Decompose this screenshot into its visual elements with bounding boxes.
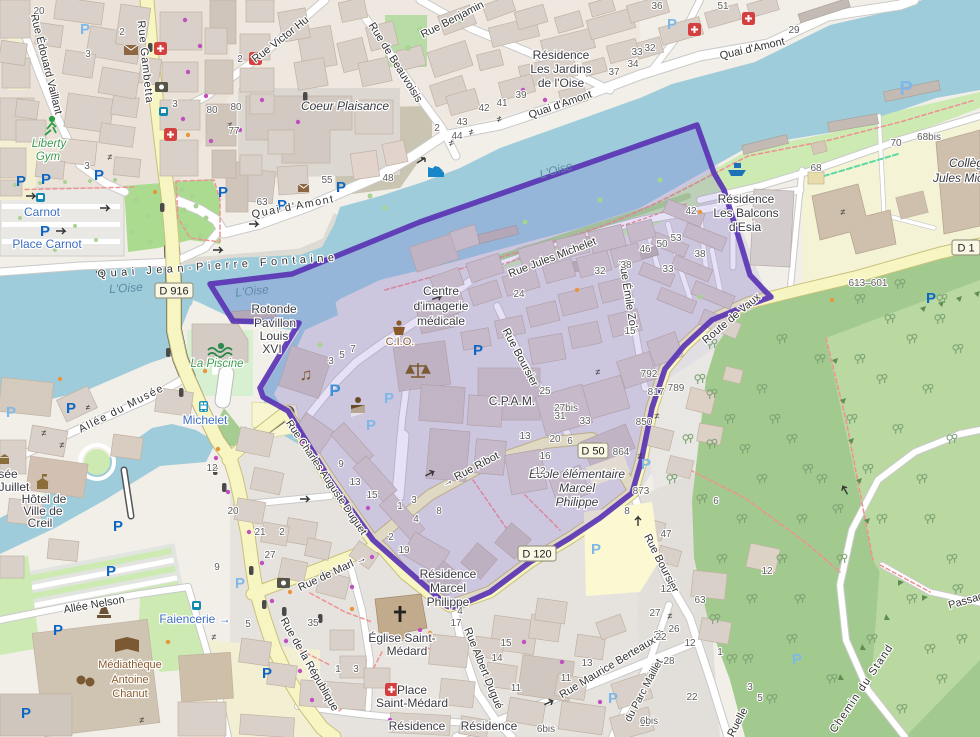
svg-text:1: 1: [397, 501, 403, 512]
svg-text:P: P: [41, 171, 51, 188]
svg-text:Marcel: Marcel: [559, 481, 595, 495]
svg-text:53: 53: [670, 233, 682, 244]
svg-text:≠: ≠: [108, 152, 113, 162]
svg-text:15: 15: [624, 326, 636, 337]
svg-text:613–601: 613–601: [849, 278, 888, 289]
svg-text:13: 13: [581, 658, 593, 669]
svg-text:21: 21: [254, 527, 266, 538]
svg-text:P: P: [113, 518, 123, 535]
svg-text:41: 41: [496, 98, 508, 109]
svg-text:D 1: D 1: [957, 243, 974, 255]
svg-text:11: 11: [511, 683, 522, 694]
svg-text:Marcel: Marcel: [430, 581, 466, 595]
svg-text:P: P: [366, 417, 376, 434]
svg-text:11: 11: [561, 673, 572, 684]
svg-text:Résidence: Résidence: [420, 567, 477, 581]
svg-text:43: 43: [456, 117, 468, 128]
svg-text:46: 46: [639, 244, 651, 255]
svg-text:33: 33: [631, 47, 643, 58]
svg-text:8: 8: [436, 506, 442, 517]
svg-text:70: 70: [890, 138, 902, 149]
svg-text:≠: ≠: [668, 611, 673, 621]
svg-text:12: 12: [534, 466, 546, 477]
svg-text:37: 37: [608, 67, 620, 78]
svg-text:Carnot: Carnot: [24, 205, 61, 219]
svg-text:27: 27: [649, 608, 661, 619]
svg-text:≠: ≠: [841, 207, 846, 217]
svg-text:Saint-Médard: Saint-Médard: [376, 696, 448, 710]
svg-text:29: 29: [788, 25, 800, 36]
svg-text:20: 20: [549, 434, 561, 445]
svg-text:15: 15: [500, 638, 512, 649]
svg-text:35: 35: [307, 618, 319, 629]
svg-text:2: 2: [279, 527, 285, 538]
svg-text:≠: ≠: [86, 403, 91, 412]
svg-text:P: P: [262, 665, 272, 682]
svg-text:≠: ≠: [638, 451, 643, 461]
svg-text:6: 6: [567, 436, 573, 447]
svg-text:33: 33: [662, 264, 674, 275]
svg-text:P: P: [608, 690, 618, 707]
svg-text:Place Carnot: Place Carnot: [12, 237, 82, 251]
svg-text:789: 789: [668, 383, 685, 394]
svg-text:3: 3: [84, 161, 90, 172]
svg-text:19: 19: [398, 545, 410, 556]
svg-text:sée: sée: [0, 467, 18, 481]
svg-text:20: 20: [227, 506, 239, 517]
svg-text:≠: ≠: [60, 440, 65, 450]
svg-text:P: P: [80, 21, 90, 38]
svg-text:50: 50: [656, 239, 668, 250]
svg-text:6bis: 6bis: [537, 724, 555, 735]
svg-text:26: 26: [668, 624, 680, 635]
svg-text:Résidence: Résidence: [533, 48, 590, 62]
svg-text:XVI: XVI: [262, 342, 281, 356]
svg-text:63: 63: [256, 197, 268, 208]
svg-text:2: 2: [434, 123, 440, 134]
svg-text:77: 77: [228, 126, 240, 137]
svg-text:28: 28: [663, 656, 675, 667]
svg-text:27: 27: [264, 550, 276, 561]
svg-text:P: P: [218, 184, 228, 201]
svg-text:25: 25: [539, 386, 551, 397]
svg-text:39: 39: [515, 90, 527, 101]
svg-text:P: P: [473, 342, 483, 359]
svg-text:4: 4: [457, 606, 463, 617]
svg-text:8: 8: [624, 506, 630, 517]
svg-text:≠: ≠: [42, 428, 47, 438]
svg-text:15: 15: [366, 490, 378, 501]
svg-text:Chanut: Chanut: [112, 688, 147, 700]
svg-text:4: 4: [413, 514, 419, 525]
svg-text:5: 5: [245, 619, 251, 630]
svg-text:≠: ≠: [596, 367, 601, 377]
svg-text:36: 36: [651, 1, 663, 12]
svg-text:P: P: [336, 179, 346, 196]
svg-text:5: 5: [339, 350, 345, 361]
svg-text:Juillet: Juillet: [0, 480, 30, 494]
svg-text:P: P: [53, 622, 63, 639]
svg-text:P: P: [926, 290, 936, 307]
svg-text:Antoine: Antoine: [111, 674, 148, 686]
svg-text:9: 9: [214, 562, 220, 573]
svg-text:Résidence: Résidence: [461, 719, 518, 733]
svg-text:13: 13: [349, 477, 361, 488]
svg-text:68: 68: [810, 163, 822, 174]
svg-text:20: 20: [33, 6, 45, 17]
svg-text:32: 32: [644, 43, 656, 54]
svg-text:873: 873: [633, 486, 650, 497]
svg-text:817: 817: [648, 387, 665, 398]
svg-text:P: P: [792, 651, 802, 668]
svg-text:48: 48: [382, 173, 394, 184]
svg-text:Les Balcons: Les Balcons: [713, 206, 778, 220]
svg-text:Creil: Creil: [28, 516, 53, 530]
svg-text:2: 2: [119, 27, 125, 38]
svg-text:P: P: [641, 456, 651, 473]
svg-text:3: 3: [85, 49, 91, 60]
svg-text:22: 22: [655, 632, 667, 643]
svg-text:P: P: [16, 173, 26, 190]
svg-text:Médiathèque: Médiathèque: [98, 659, 162, 671]
svg-text:C.I.O.: C.I.O.: [386, 336, 415, 348]
svg-text:Les Jardins: Les Jardins: [530, 62, 591, 76]
svg-text:22: 22: [686, 692, 698, 703]
svg-text:3: 3: [747, 682, 753, 693]
svg-text:L'Oise: L'Oise: [109, 280, 144, 296]
svg-text:d'imagerie: d'imagerie: [414, 299, 469, 313]
svg-text:Jules Mic: Jules Mic: [932, 171, 980, 185]
svg-text:38: 38: [694, 249, 706, 260]
svg-text:51: 51: [717, 1, 729, 12]
svg-text:80: 80: [206, 105, 218, 116]
svg-text:≠: ≠: [655, 411, 660, 421]
svg-text:12: 12: [660, 584, 672, 595]
svg-text:31: 31: [554, 411, 566, 422]
svg-text:D 916: D 916: [159, 286, 188, 298]
svg-text:63: 63: [694, 595, 706, 606]
svg-text:3: 3: [172, 99, 178, 110]
svg-text:de l'Oise: de l'Oise: [538, 76, 585, 90]
svg-text:≠: ≠: [212, 632, 217, 642]
svg-text:6bis: 6bis: [640, 716, 658, 727]
svg-text:♫: ♫: [300, 365, 313, 384]
svg-text:C.P.A.M.: C.P.A.M.: [489, 394, 535, 408]
svg-text:Liberty: Liberty: [32, 138, 68, 150]
svg-text:Centre: Centre: [423, 284, 459, 298]
svg-text:2: 2: [237, 54, 243, 65]
svg-text:P: P: [106, 563, 116, 580]
svg-text:P: P: [384, 390, 394, 407]
svg-text:P: P: [591, 541, 601, 558]
svg-text:Église Saint-: Église Saint-: [368, 630, 435, 645]
svg-text:14: 14: [491, 653, 503, 664]
svg-text:864: 864: [613, 447, 630, 458]
svg-text:Philippe: Philippe: [556, 495, 599, 509]
svg-text:7: 7: [350, 344, 356, 355]
svg-text:33: 33: [579, 416, 591, 427]
svg-text:9: 9: [338, 459, 344, 470]
svg-text:34: 34: [627, 59, 639, 70]
svg-text:Faiencerie →: Faiencerie →: [159, 612, 230, 626]
svg-text:42: 42: [478, 103, 490, 114]
svg-text:12: 12: [206, 463, 218, 474]
svg-text:P: P: [94, 167, 104, 184]
svg-text:≠: ≠: [140, 715, 145, 725]
svg-text:3: 3: [328, 356, 334, 367]
svg-text:24: 24: [513, 289, 525, 300]
svg-text:Résidence: Résidence: [718, 192, 775, 206]
svg-text:6: 6: [713, 496, 719, 507]
svg-text:D 50: D 50: [581, 446, 604, 458]
svg-text:3: 3: [411, 495, 417, 506]
svg-text:Coeur Plaisance: Coeur Plaisance: [301, 99, 389, 113]
svg-text:38: 38: [620, 260, 632, 271]
svg-text:Médard: Médard: [387, 644, 428, 658]
svg-text:55: 55: [321, 175, 333, 186]
svg-text:47: 47: [660, 529, 672, 540]
svg-text:68bis: 68bis: [917, 132, 941, 143]
svg-text:Michelet: Michelet: [183, 413, 228, 427]
svg-text:5: 5: [757, 693, 763, 704]
svg-text:médicale: médicale: [417, 314, 465, 328]
svg-text:32: 32: [594, 266, 606, 277]
svg-text:42: 42: [685, 206, 697, 217]
svg-text:Collèg: Collèg: [949, 156, 980, 170]
svg-text:13: 13: [519, 431, 531, 442]
svg-text:P: P: [899, 78, 912, 100]
svg-text:2: 2: [388, 532, 394, 543]
svg-text:P: P: [66, 400, 76, 417]
svg-text:1: 1: [717, 647, 723, 658]
svg-text:P: P: [329, 381, 340, 400]
svg-text:Louis: Louis: [260, 329, 289, 343]
svg-text:850: 850: [636, 417, 653, 428]
svg-text:Gym: Gym: [36, 151, 61, 163]
svg-text:P: P: [667, 16, 677, 33]
svg-text:Résidence: Résidence: [389, 719, 446, 733]
svg-text:80: 80: [230, 102, 242, 113]
svg-text:44: 44: [451, 131, 463, 142]
svg-text:3: 3: [353, 664, 359, 675]
svg-text:16: 16: [539, 451, 551, 462]
svg-text:17: 17: [450, 618, 462, 629]
svg-text:P: P: [6, 404, 16, 421]
svg-text:12: 12: [761, 566, 773, 577]
svg-text:Philippe: Philippe: [427, 595, 470, 609]
svg-text:P: P: [21, 705, 31, 722]
svg-text:1: 1: [335, 664, 341, 675]
svg-text:Pavillon: Pavillon: [254, 316, 296, 330]
svg-text:P: P: [235, 575, 245, 592]
svg-text:Place: Place: [397, 683, 427, 697]
svg-text:Rotonde: Rotonde: [251, 302, 297, 316]
svg-text:792: 792: [641, 369, 658, 380]
svg-text:D 120: D 120: [522, 549, 551, 561]
svg-text:La Piscine: La Piscine: [190, 358, 243, 370]
svg-text:d'Esia: d'Esia: [729, 220, 762, 234]
svg-text:12: 12: [684, 638, 696, 649]
